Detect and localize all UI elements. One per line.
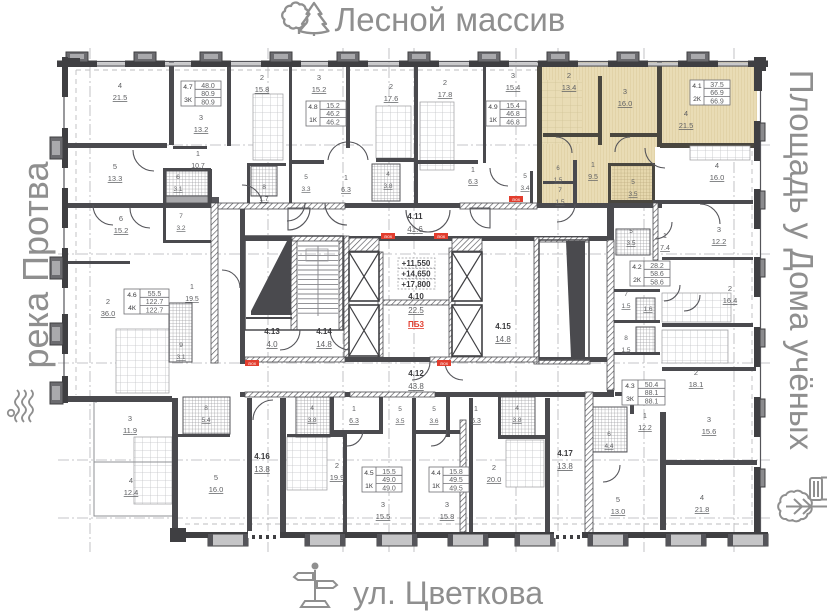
svg-text:66.9: 66.9 (710, 98, 724, 105)
svg-text:5: 5 (398, 406, 402, 413)
svg-text:46.2: 46.2 (326, 119, 340, 126)
svg-text:3: 3 (707, 415, 711, 424)
svg-text:6: 6 (176, 174, 180, 181)
svg-text:58.6: 58.6 (650, 279, 664, 286)
svg-text:14.8: 14.8 (316, 340, 332, 349)
svg-text:17.6: 17.6 (384, 94, 399, 103)
svg-text:6.3: 6.3 (349, 418, 359, 425)
svg-text:4.9: 4.9 (488, 104, 498, 111)
svg-text:43.8: 43.8 (408, 382, 424, 391)
svg-text:5.4: 5.4 (201, 417, 210, 424)
svg-text:13.8: 13.8 (557, 462, 573, 471)
svg-text:14.8: 14.8 (495, 335, 511, 344)
svg-text:3: 3 (128, 414, 132, 423)
svg-text:80.9: 80.9 (201, 91, 215, 98)
svg-text:4.7: 4.7 (183, 84, 193, 91)
svg-text:15.2: 15.2 (312, 85, 327, 94)
svg-text:1К: 1К (365, 483, 373, 490)
svg-text:ЛЮК: ЛЮК (512, 198, 521, 202)
svg-text:58.6: 58.6 (650, 271, 664, 278)
svg-text:19.5: 19.5 (185, 296, 199, 303)
svg-text:4.8: 4.8 (308, 104, 318, 111)
svg-text:7: 7 (558, 187, 562, 194)
svg-text:41.6: 41.6 (407, 225, 423, 234)
svg-text:1К: 1К (432, 483, 440, 490)
svg-text:21.5: 21.5 (679, 121, 694, 130)
svg-text:3.1: 3.1 (176, 354, 185, 361)
svg-text:15.4: 15.4 (506, 83, 521, 92)
svg-text:17.8: 17.8 (438, 90, 453, 99)
svg-text:1: 1 (591, 162, 595, 169)
svg-text:4.1: 4.1 (692, 83, 702, 90)
svg-text:ул. Цветкова: ул. Цветкова (353, 575, 543, 611)
svg-text:3К: 3К (626, 396, 634, 403)
svg-text:4: 4 (129, 476, 133, 485)
svg-text:46.8: 46.8 (506, 119, 520, 126)
svg-text:12.4: 12.4 (124, 488, 139, 497)
svg-text:1: 1 (643, 413, 647, 420)
svg-text:2: 2 (694, 368, 698, 377)
svg-text:1.5: 1.5 (555, 199, 564, 206)
svg-text:3: 3 (381, 500, 385, 509)
svg-text:16.0: 16.0 (209, 485, 224, 494)
svg-text:ПБ3: ПБ3 (408, 320, 425, 329)
svg-text:15.4: 15.4 (506, 103, 520, 110)
svg-text:4: 4 (118, 81, 122, 90)
svg-text:36.0: 36.0 (101, 309, 116, 318)
svg-text:122.7: 122.7 (146, 299, 164, 306)
svg-text:4.15: 4.15 (495, 322, 511, 331)
svg-text:15.5: 15.5 (382, 469, 396, 476)
svg-text:2: 2 (443, 78, 447, 87)
svg-text:80.9: 80.9 (201, 99, 215, 106)
svg-text:7: 7 (179, 213, 183, 220)
svg-text:1К: 1К (309, 117, 317, 124)
svg-text:2К: 2К (633, 277, 641, 284)
svg-text:15.2: 15.2 (326, 103, 340, 110)
svg-text:8: 8 (624, 335, 628, 342)
svg-text:3.8: 3.8 (512, 417, 521, 424)
svg-text:4: 4 (515, 405, 519, 412)
svg-text:3.1: 3.1 (173, 186, 182, 193)
svg-text:1: 1 (196, 151, 200, 158)
svg-text:1К: 1К (489, 117, 497, 124)
svg-text:49.5: 49.5 (449, 485, 463, 492)
svg-text:5: 5 (214, 473, 218, 482)
svg-text:13.3: 13.3 (108, 174, 123, 183)
svg-text:13.8: 13.8 (254, 465, 270, 474)
svg-text:2: 2 (389, 82, 393, 91)
svg-text:3.6: 3.6 (429, 418, 438, 425)
svg-text:3.4: 3.4 (520, 185, 529, 192)
svg-text:6.3: 6.3 (471, 418, 481, 425)
svg-text:46.2: 46.2 (326, 111, 340, 118)
svg-text:3: 3 (623, 87, 627, 96)
svg-text:2К: 2К (693, 96, 701, 103)
svg-text:1: 1 (471, 167, 475, 174)
svg-text:4: 4 (715, 161, 719, 170)
svg-text:122.7: 122.7 (146, 307, 164, 314)
svg-text:11.9: 11.9 (123, 426, 137, 435)
svg-text:1.5: 1.5 (554, 178, 563, 184)
svg-text:4.11: 4.11 (407, 212, 423, 221)
svg-text:50.4: 50.4 (645, 382, 659, 389)
svg-text:1.5: 1.5 (621, 303, 630, 310)
svg-text:3: 3 (199, 113, 203, 122)
svg-text:4.0: 4.0 (266, 340, 278, 349)
svg-text:28.2: 28.2 (650, 263, 664, 270)
svg-text:2: 2 (567, 71, 571, 80)
svg-text:88.1: 88.1 (645, 398, 659, 405)
svg-text:6: 6 (607, 431, 611, 438)
svg-text:1: 1 (352, 406, 356, 413)
svg-text:4.2: 4.2 (632, 264, 642, 271)
svg-text:15.8: 15.8 (449, 469, 463, 476)
svg-text:4: 4 (684, 109, 688, 118)
svg-text:2: 2 (728, 284, 732, 293)
svg-text:15.8: 15.8 (440, 512, 455, 521)
svg-text:21.5: 21.5 (113, 93, 128, 102)
svg-text:88.1: 88.1 (645, 390, 659, 397)
svg-text:4.5: 4.5 (364, 470, 374, 477)
svg-text:1: 1 (474, 406, 478, 413)
svg-text:4: 4 (700, 493, 704, 502)
svg-text:5: 5 (113, 162, 117, 171)
svg-text:16.4: 16.4 (723, 296, 738, 305)
svg-text:4.6: 4.6 (127, 292, 137, 299)
svg-text:19.9: 19.9 (330, 473, 345, 482)
svg-text:55.5: 55.5 (148, 291, 162, 298)
svg-text:21.8: 21.8 (695, 505, 710, 514)
svg-text:ЛЮК: ЛЮК (384, 235, 393, 239)
svg-text:5: 5 (432, 406, 436, 413)
svg-text:2: 2 (106, 297, 110, 306)
svg-text:5: 5 (629, 228, 633, 235)
svg-text:66.9: 66.9 (710, 90, 724, 97)
svg-text:7.4: 7.4 (660, 245, 670, 252)
svg-text:15.5: 15.5 (376, 512, 391, 521)
svg-text:5: 5 (631, 179, 635, 186)
svg-text:5: 5 (523, 173, 527, 180)
svg-text:1.5: 1.5 (621, 347, 630, 354)
svg-text:2: 2 (492, 463, 496, 472)
svg-text:3.8: 3.8 (307, 417, 316, 424)
svg-text:22.5: 22.5 (408, 306, 424, 315)
svg-text:+14,650: +14,650 (401, 270, 431, 279)
svg-text:3: 3 (511, 71, 515, 80)
svg-text:ЛЮК: ЛЮК (248, 362, 257, 366)
svg-text:3К: 3К (184, 97, 192, 104)
svg-text:ЛЮК: ЛЮК (440, 362, 449, 366)
svg-text:4.17: 4.17 (557, 449, 573, 458)
svg-text:1: 1 (344, 175, 348, 182)
svg-text:20.0: 20.0 (487, 475, 502, 484)
svg-text:4: 4 (310, 405, 314, 412)
svg-text:15.2: 15.2 (114, 226, 129, 235)
svg-text:3.5: 3.5 (395, 418, 404, 425)
svg-text:4.10: 4.10 (408, 292, 424, 301)
svg-text:4.13: 4.13 (264, 327, 280, 336)
svg-text:49.0: 49.0 (382, 485, 396, 492)
svg-text:2: 2 (335, 461, 339, 470)
svg-text:10.7: 10.7 (191, 163, 205, 170)
svg-text:3: 3 (317, 73, 321, 82)
svg-text:Лесной массив: Лесной массив (335, 1, 566, 38)
svg-text:3.5: 3.5 (626, 240, 635, 247)
svg-text:1.7: 1.7 (259, 196, 268, 203)
svg-text:4К: 4К (128, 305, 136, 312)
svg-text:4: 4 (386, 171, 390, 178)
svg-text:5: 5 (616, 495, 620, 504)
svg-text:1: 1 (190, 284, 194, 291)
svg-text:9: 9 (179, 342, 183, 349)
svg-text:3.2: 3.2 (176, 225, 185, 232)
svg-text:7: 7 (624, 291, 628, 298)
svg-text:13.2: 13.2 (194, 125, 209, 134)
svg-text:5: 5 (304, 174, 308, 181)
svg-text:6.3: 6.3 (341, 187, 351, 194)
svg-text:48.0: 48.0 (201, 83, 215, 90)
svg-text:4.16: 4.16 (254, 452, 270, 461)
svg-text:3.5: 3.5 (628, 191, 637, 198)
svg-text:4.4: 4.4 (604, 443, 613, 450)
svg-text:1: 1 (663, 233, 667, 240)
svg-text:16.0: 16.0 (710, 173, 725, 182)
svg-text:8: 8 (262, 184, 266, 191)
svg-text:46.8: 46.8 (506, 111, 520, 118)
svg-text:+11,550: +11,550 (402, 259, 431, 268)
svg-text:49.5: 49.5 (449, 477, 463, 484)
svg-text:13.4: 13.4 (562, 83, 577, 92)
svg-text:15.8: 15.8 (255, 85, 270, 94)
svg-text:15.6: 15.6 (702, 427, 717, 436)
svg-text:12.2: 12.2 (638, 425, 652, 432)
svg-text:4.12: 4.12 (408, 369, 424, 378)
svg-text:4.14: 4.14 (316, 327, 332, 336)
svg-text:6.3: 6.3 (468, 179, 478, 186)
svg-text:3.8: 3.8 (383, 183, 392, 190)
svg-text:12.2: 12.2 (712, 237, 727, 246)
svg-text:49.0: 49.0 (382, 477, 396, 484)
svg-text:Площадь у Дома учёных: Площадь у Дома учёных (783, 70, 820, 451)
svg-text:8: 8 (204, 405, 208, 412)
svg-text:3.3: 3.3 (301, 186, 310, 193)
svg-text:6: 6 (119, 214, 123, 223)
svg-text:18.1: 18.1 (689, 380, 704, 389)
svg-text:3: 3 (445, 500, 449, 509)
svg-text:4.3: 4.3 (625, 383, 635, 390)
svg-text:4.4: 4.4 (431, 470, 441, 477)
svg-text:2: 2 (260, 73, 264, 82)
svg-text:37.5: 37.5 (710, 82, 724, 89)
svg-text:ЛЮК: ЛЮК (437, 235, 446, 239)
svg-text:9.5: 9.5 (588, 174, 598, 181)
svg-text:13.0: 13.0 (611, 507, 626, 516)
svg-text:+17,800: +17,800 (401, 280, 431, 289)
svg-text:1.6: 1.6 (643, 306, 652, 313)
svg-text:16.0: 16.0 (618, 99, 633, 108)
svg-text:3: 3 (717, 225, 721, 234)
